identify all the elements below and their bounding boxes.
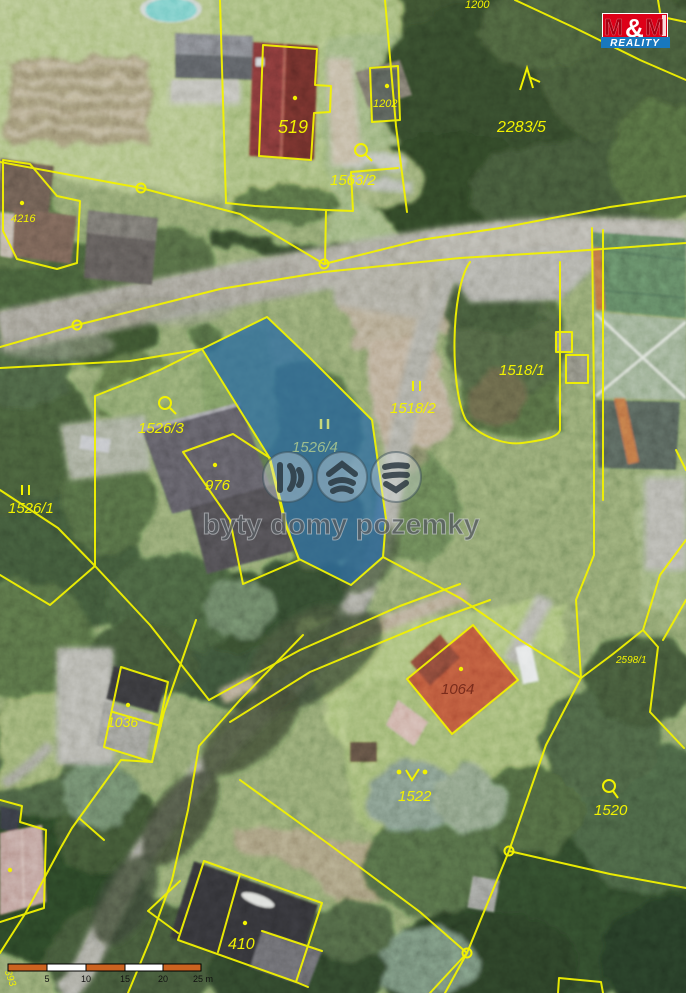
svg-text:1520: 1520 [594, 802, 628, 819]
svg-text:2598/1: 2598/1 [615, 655, 647, 666]
svg-text:20: 20 [158, 974, 168, 984]
svg-text:REALITY: REALITY [610, 38, 660, 49]
svg-text:1563/2: 1563/2 [330, 172, 377, 189]
svg-text:1518/2: 1518/2 [390, 400, 437, 417]
svg-text:2283/5: 2283/5 [496, 119, 546, 136]
svg-text:10: 10 [81, 974, 91, 984]
svg-text:1526/3: 1526/3 [138, 420, 185, 437]
svg-text:1064: 1064 [441, 681, 474, 698]
svg-text:M: M [604, 14, 623, 40]
svg-text:M: M [645, 14, 664, 40]
svg-text:15: 15 [120, 974, 130, 984]
svg-text:byty domy pozemky: byty domy pozemky [202, 509, 479, 541]
svg-text:5: 5 [44, 974, 49, 984]
svg-text:1522: 1522 [398, 788, 432, 805]
svg-text:1518/1: 1518/1 [499, 362, 545, 379]
svg-text:1200: 1200 [465, 0, 490, 11]
svg-text:1202: 1202 [373, 98, 397, 110]
svg-text:519: 519 [278, 117, 308, 137]
svg-text:976: 976 [205, 477, 231, 494]
svg-text:1526/1: 1526/1 [8, 500, 54, 517]
svg-text:4216: 4216 [11, 213, 36, 225]
svg-text:1036: 1036 [107, 714, 138, 730]
svg-text:25 m: 25 m [193, 974, 213, 984]
svg-text:410: 410 [228, 936, 255, 953]
